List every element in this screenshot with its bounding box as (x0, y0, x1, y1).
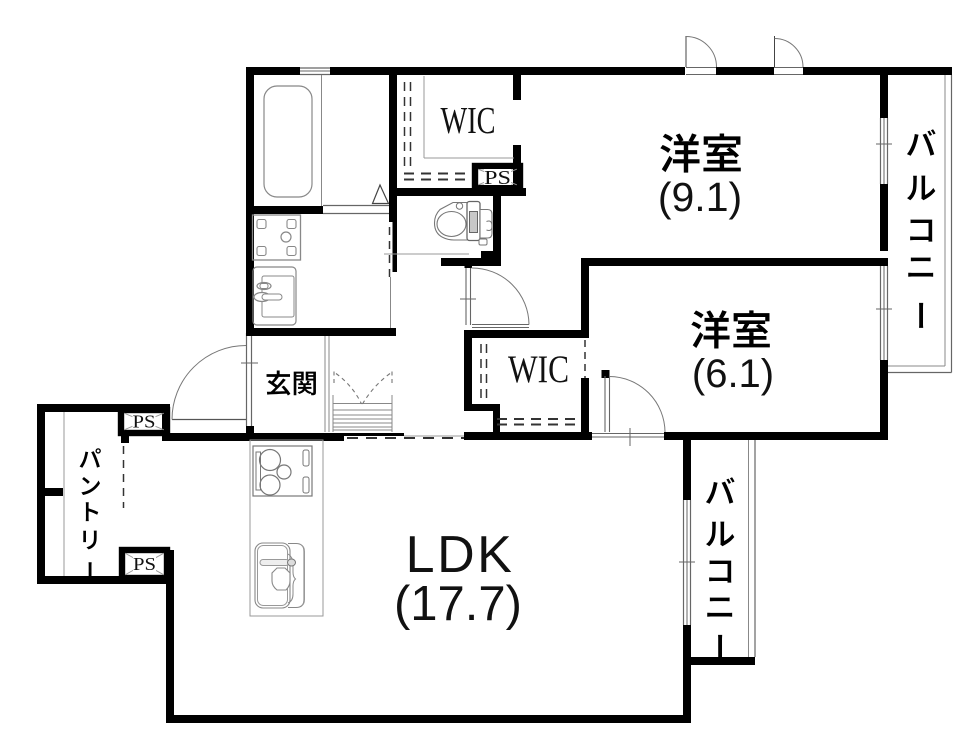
svg-text:PS: PS (133, 554, 156, 574)
svg-text:(17.7): (17.7) (394, 577, 522, 631)
svg-text:WIC: WIC (508, 348, 569, 391)
svg-text:PS: PS (484, 167, 511, 189)
svg-text:WIC: WIC (441, 100, 496, 142)
svg-text:(6.1): (6.1) (692, 352, 774, 396)
svg-text:PS: PS (133, 412, 156, 432)
svg-text:LDK: LDK (406, 526, 515, 584)
svg-text:(9.1): (9.1) (658, 174, 742, 220)
